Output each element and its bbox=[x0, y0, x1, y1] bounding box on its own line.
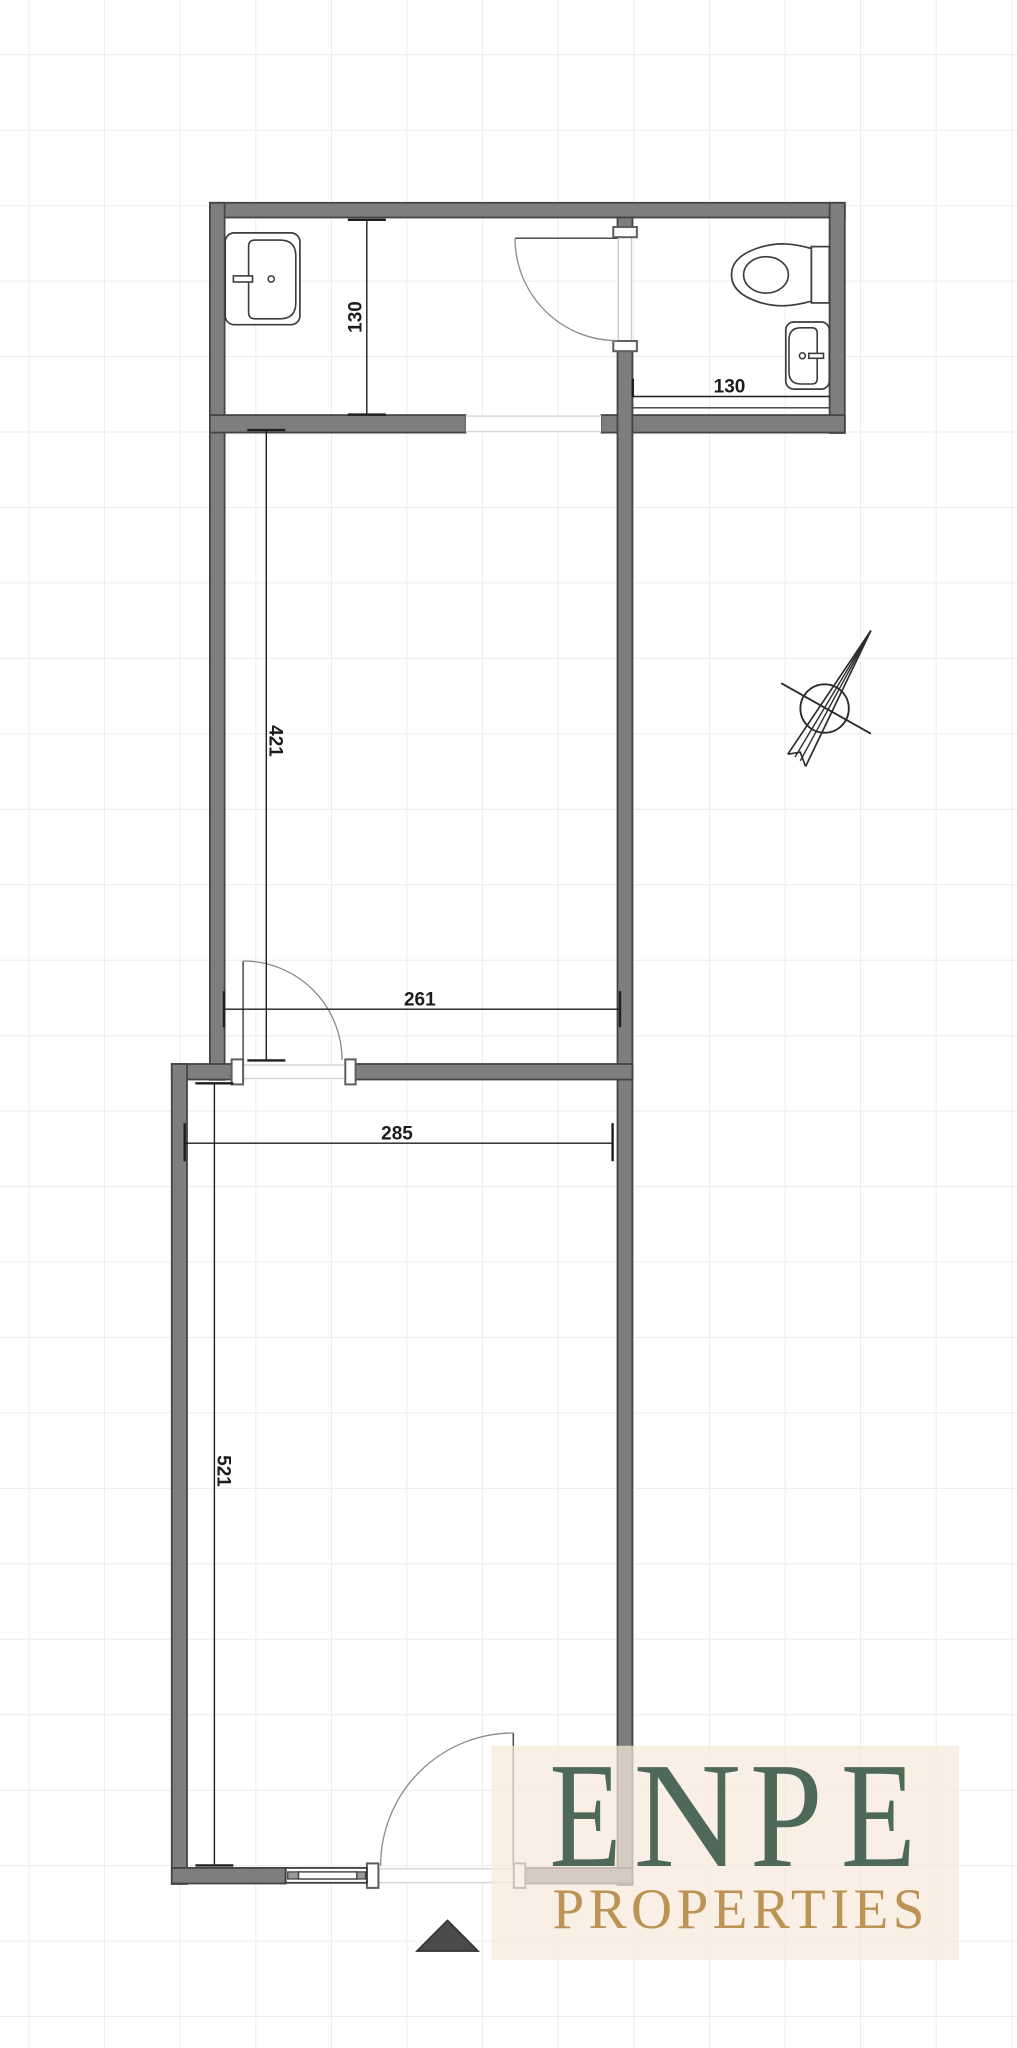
svg-text:521: 521 bbox=[212, 1455, 233, 1487]
svg-text:E: E bbox=[550, 1732, 622, 1899]
svg-text:PROPERTIES: PROPERTIES bbox=[553, 1878, 929, 1941]
svg-text:130: 130 bbox=[714, 376, 746, 397]
svg-text:E: E bbox=[841, 1732, 916, 1899]
svg-text:N: N bbox=[633, 1732, 741, 1899]
svg-text:285: 285 bbox=[381, 1124, 413, 1145]
svg-text:261: 261 bbox=[404, 990, 436, 1011]
svg-text:421: 421 bbox=[265, 725, 286, 757]
svg-text:P: P bbox=[750, 1731, 823, 1899]
svg-text:130: 130 bbox=[346, 301, 367, 333]
